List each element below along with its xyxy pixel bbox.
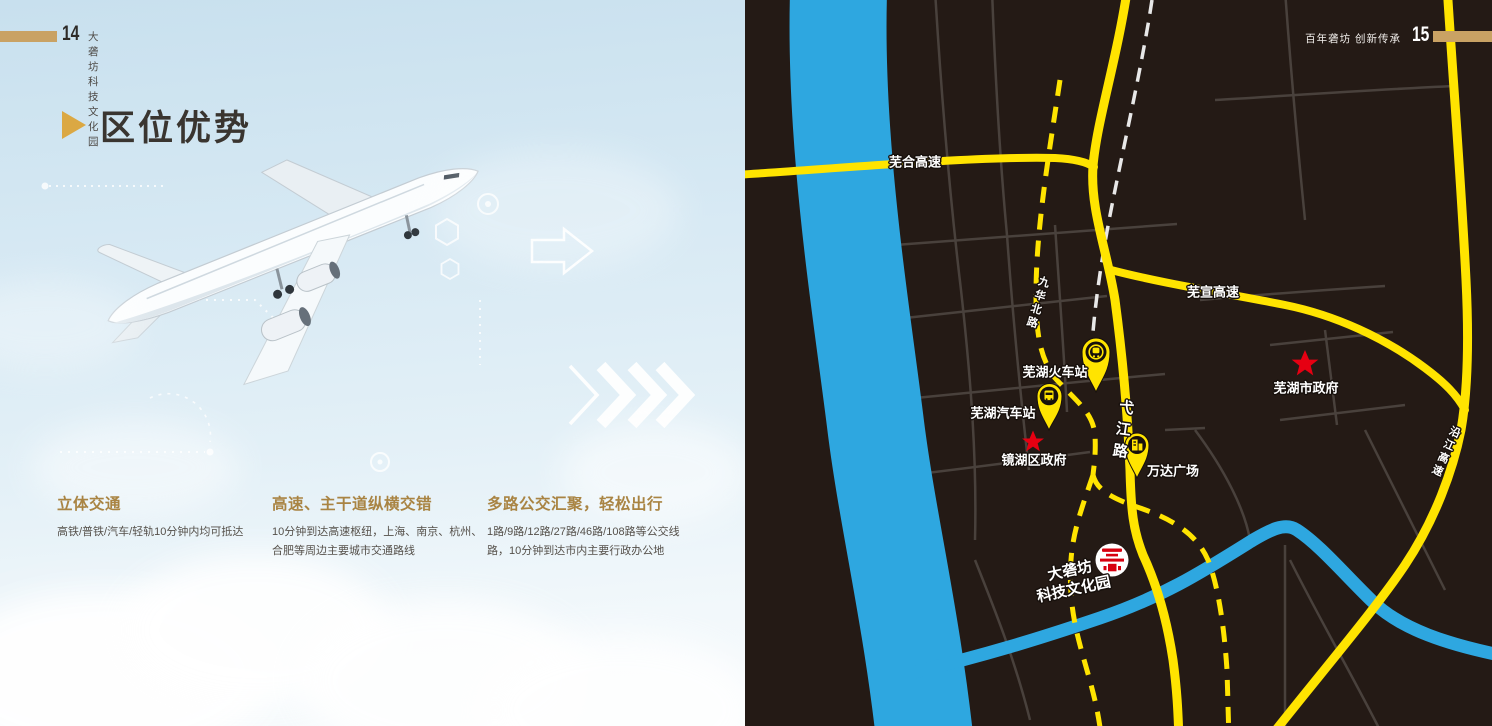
label-jinghu-gov: 镜湖区政府 — [1001, 450, 1066, 469]
label-wuxuan-expressway: 芜宣高速 — [1187, 282, 1239, 301]
feature-column: 多路公交汇聚，轻松出行 1路/9路/12路/27路/46路/108路等公交线路，… — [487, 492, 699, 562]
feature-body: 10分钟到达高速枢纽，上海、南京、杭州、合肥等周边主要城市交通路线 — [272, 523, 484, 562]
brochure-spread: 14 大砻坊科技文化园 区位优势 立体交通 高铁/普铁/汽车/轻轨10分钟内均可… — [0, 0, 1492, 726]
bus-station-pin-icon — [1037, 383, 1062, 430]
label-wuhe-expressway: 芜合高速 — [889, 152, 941, 171]
brand-text: 大砻坊科技文化园 — [88, 29, 100, 149]
cloud — [430, 150, 680, 270]
label-city-gov: 芜湖市政府 — [1273, 378, 1338, 397]
feature-column: 高速、主干道纵横交错 10分钟到达高速枢纽，上海、南京、杭州、合肥等周边主要城市… — [272, 492, 484, 562]
right-page-header: 百年砻坊 创新传承 15 — [745, 22, 1492, 52]
section-title: 区位优势 — [100, 100, 252, 151]
triangle-bullet-icon — [62, 111, 86, 139]
label-bus-station: 芜湖汽车站 — [970, 403, 1035, 422]
feature-heading: 高速、主干道纵横交错 — [272, 492, 484, 514]
label-wanda-plaza: 万达广场 — [1147, 461, 1199, 480]
page-number: 15 — [1412, 23, 1429, 47]
feature-column: 立体交通 高铁/普铁/汽车/轻轨10分钟内均可抵达 — [57, 492, 269, 542]
feature-body: 1路/9路/12路/27路/46路/108路等公交线路，10分钟到达市内主要行政… — [487, 523, 699, 562]
right-page-map: 芜合高速 芜宣高速 弋江路 九华北路 沿江高速 芜湖火车站 芜湖汽车站 镜湖区政… — [745, 0, 1492, 726]
slogan-text: 百年砻坊 创新传承 — [1283, 31, 1401, 46]
gold-bar — [0, 31, 57, 42]
left-page: 14 大砻坊科技文化园 区位优势 立体交通 高铁/普铁/汽车/轻轨10分钟内均可… — [0, 0, 745, 726]
label-train-station: 芜湖火车站 — [1022, 362, 1087, 381]
feature-heading: 多路公交汇聚，轻松出行 — [487, 492, 699, 514]
city-map — [745, 0, 1492, 726]
feature-body: 高铁/普铁/汽车/轻轨10分钟内均可抵达 — [57, 523, 269, 542]
city-gov-star-icon — [1292, 350, 1319, 375]
chevrons-right-icon — [570, 366, 687, 424]
gold-bar — [1433, 31, 1492, 42]
page-number: 14 — [62, 22, 79, 46]
feature-heading: 立体交通 — [57, 492, 269, 514]
